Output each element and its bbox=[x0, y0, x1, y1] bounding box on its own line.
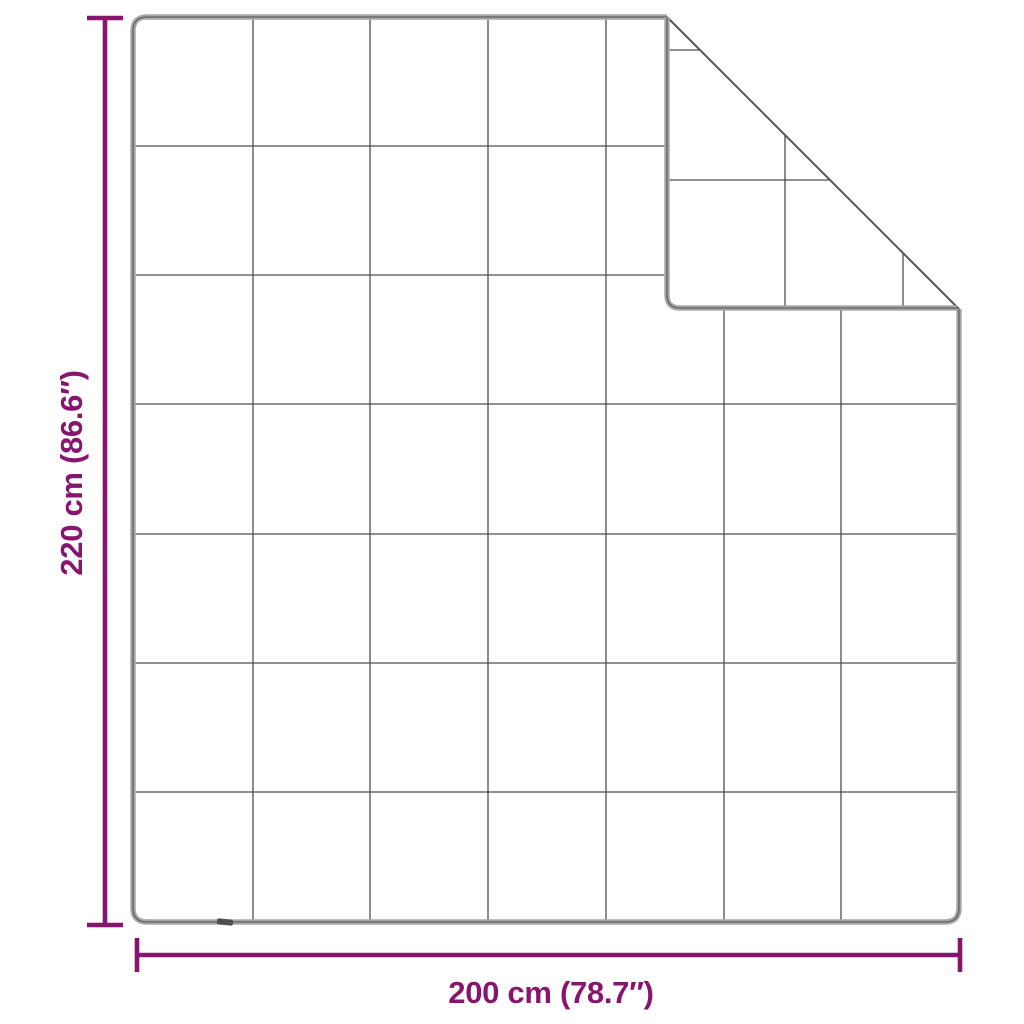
diagram-canvas: 220 cm (86.6″) 200 cm (78.7″) bbox=[0, 0, 1024, 1024]
fold-crease-line bbox=[667, 17, 959, 309]
width-dimension: 200 cm (78.7″) bbox=[137, 938, 960, 1010]
blanket-dimension-diagram: 220 cm (86.6″) 200 cm (78.7″) bbox=[0, 0, 1024, 1024]
quilt-grid bbox=[133, 17, 959, 922]
blanket-outline bbox=[133, 17, 959, 922]
height-label: 220 cm (86.6″) bbox=[54, 370, 89, 575]
height-dimension: 220 cm (86.6″) bbox=[54, 18, 123, 925]
folded-corner-grid bbox=[667, 50, 903, 308]
width-label: 200 cm (78.7″) bbox=[448, 975, 653, 1010]
